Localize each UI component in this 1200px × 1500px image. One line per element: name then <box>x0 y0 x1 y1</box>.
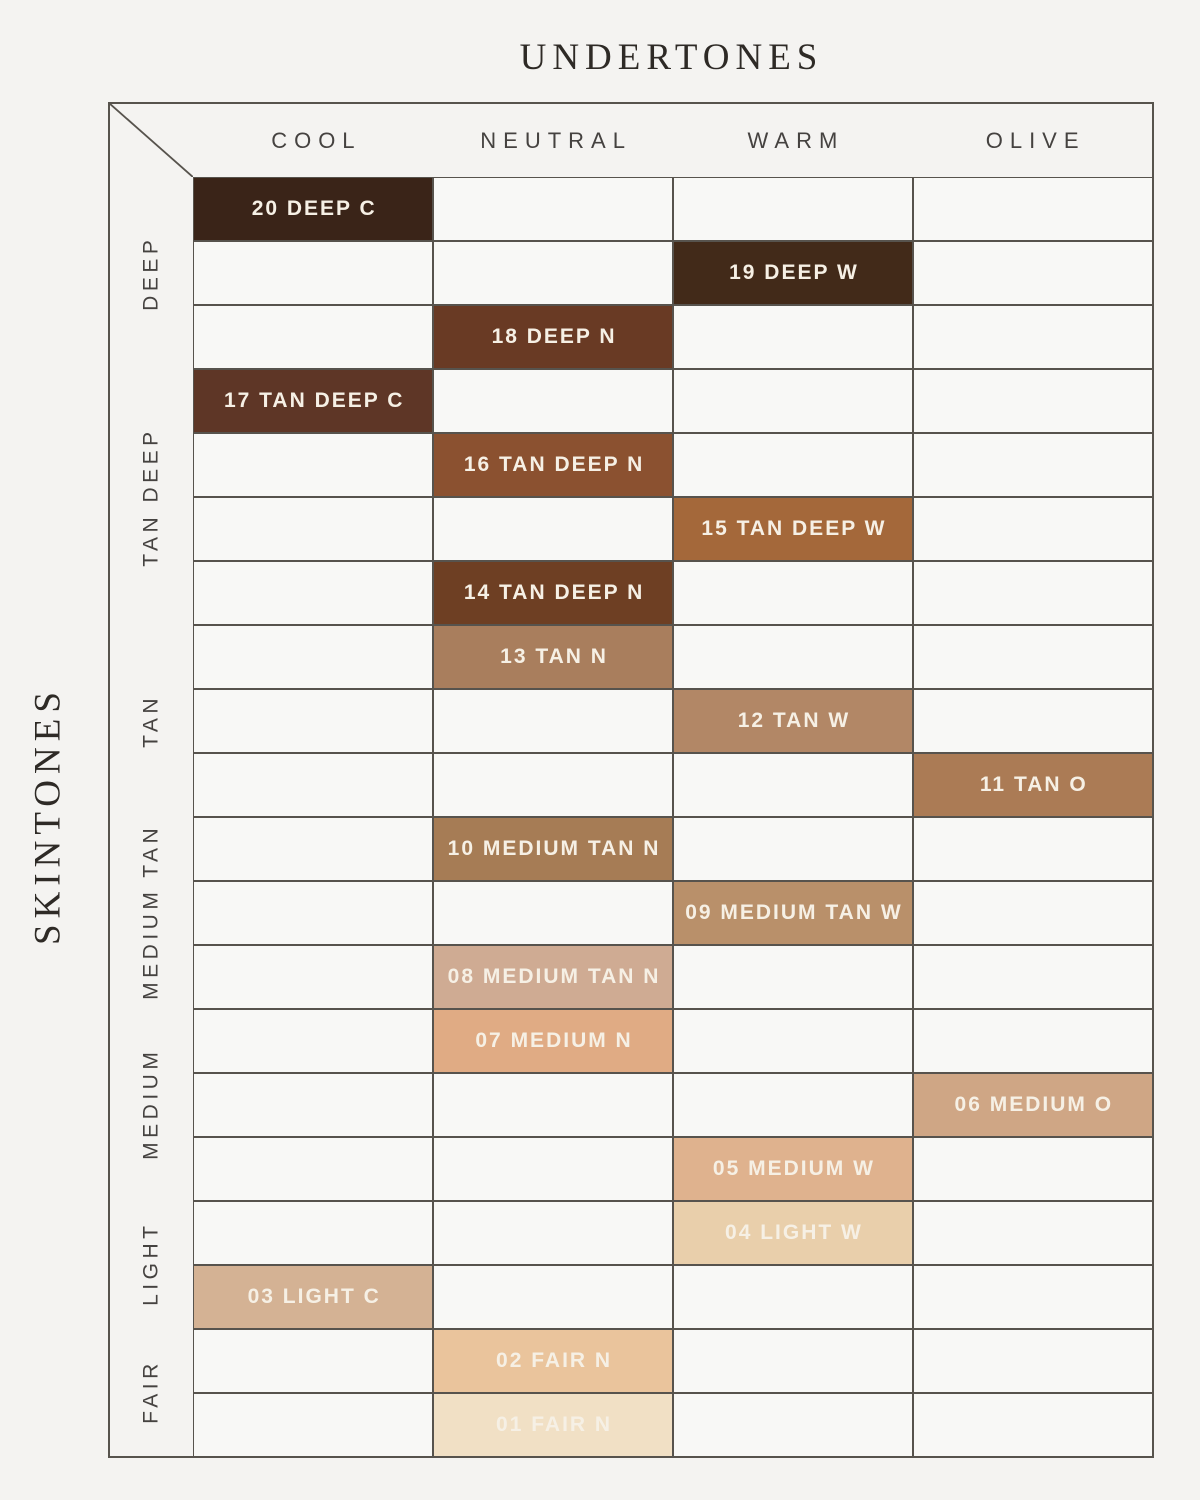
shade-swatch-13-tan-n: 13 TAN N <box>434 626 672 688</box>
empty-grid-cell <box>434 1266 672 1328</box>
empty-grid-cell <box>194 498 432 560</box>
undertone-header-olive: OLIVE <box>912 104 1152 177</box>
empty-grid-cell <box>194 754 432 816</box>
shade-swatch-05-medium-w: 05 MEDIUM W <box>674 1138 912 1200</box>
empty-grid-cell <box>914 690 1152 752</box>
corner-cell <box>110 104 193 177</box>
shade-swatch-16-tan-deep-n: 16 TAN DEEP N <box>434 434 672 496</box>
shade-swatch-08-medium-tan-n: 08 MEDIUM TAN N <box>434 946 672 1008</box>
empty-grid-cell <box>194 1394 432 1456</box>
empty-grid-cell <box>914 1330 1152 1392</box>
empty-grid-cell <box>194 1138 432 1200</box>
empty-grid-cell <box>914 882 1152 944</box>
empty-grid-cell <box>914 818 1152 880</box>
skintone-group-label-medium-tan: MEDIUM TAN <box>110 816 193 1008</box>
empty-grid-cell <box>914 306 1152 368</box>
shade-grid: 20 DEEP C19 DEEP W18 DEEP N17 TAN DEEP C… <box>193 177 1152 1456</box>
empty-grid-cell <box>674 370 912 432</box>
empty-grid-cell <box>434 1138 672 1200</box>
empty-grid-cell <box>674 818 912 880</box>
empty-grid-cell <box>914 434 1152 496</box>
empty-grid-cell <box>194 882 432 944</box>
skintone-group-label-light: LIGHT <box>110 1200 193 1328</box>
empty-grid-cell <box>194 434 432 496</box>
empty-grid-cell <box>434 242 672 304</box>
empty-grid-cell <box>914 1394 1152 1456</box>
empty-grid-cell <box>434 498 672 560</box>
shade-swatch-01-fair-n: 01 FAIR N <box>434 1394 672 1456</box>
empty-grid-cell <box>194 946 432 1008</box>
empty-grid-cell <box>914 1202 1152 1264</box>
empty-grid-cell <box>914 242 1152 304</box>
empty-grid-cell <box>674 1010 912 1072</box>
empty-grid-cell <box>914 946 1152 1008</box>
empty-grid-cell <box>194 690 432 752</box>
empty-grid-cell <box>914 1138 1152 1200</box>
empty-grid-cell <box>674 754 912 816</box>
empty-grid-cell <box>914 562 1152 624</box>
skintones-axis-title: SKINTONES <box>18 175 78 1456</box>
empty-grid-cell <box>194 306 432 368</box>
skintone-group-label-tan-deep: TAN DEEP <box>110 369 193 625</box>
empty-grid-cell <box>674 178 912 240</box>
empty-grid-cell <box>674 562 912 624</box>
shade-swatch-15-tan-deep-w: 15 TAN DEEP W <box>674 498 912 560</box>
empty-grid-cell <box>674 306 912 368</box>
empty-grid-cell <box>434 178 672 240</box>
skintone-group-label-deep: DEEP <box>110 177 193 369</box>
shade-swatch-04-light-w: 04 LIGHT W <box>674 1202 912 1264</box>
shade-swatch-09-medium-tan-w: 09 MEDIUM TAN W <box>674 882 912 944</box>
empty-grid-cell <box>194 1010 432 1072</box>
chart-title: UNDERTONES <box>191 36 1152 79</box>
empty-grid-cell <box>674 1394 912 1456</box>
empty-grid-cell <box>674 1266 912 1328</box>
shade-swatch-06-medium-o: 06 MEDIUM O <box>914 1074 1152 1136</box>
empty-grid-cell <box>194 818 432 880</box>
empty-grid-cell <box>434 882 672 944</box>
shade-swatch-03-light-c: 03 LIGHT C <box>194 1266 432 1328</box>
empty-grid-cell <box>674 1330 912 1392</box>
empty-grid-cell <box>194 1330 432 1392</box>
empty-grid-cell <box>194 1074 432 1136</box>
undertone-header-cool: COOL <box>193 104 433 177</box>
empty-grid-cell <box>674 626 912 688</box>
empty-grid-cell <box>914 1266 1152 1328</box>
shade-swatch-19-deep-w: 19 DEEP W <box>674 242 912 304</box>
undertone-header-neutral: NEUTRAL <box>433 104 673 177</box>
empty-grid-cell <box>914 626 1152 688</box>
shade-swatch-18-deep-n: 18 DEEP N <box>434 306 672 368</box>
empty-grid-cell <box>914 370 1152 432</box>
empty-grid-cell <box>914 1010 1152 1072</box>
shade-swatch-11-tan-o: 11 TAN O <box>914 754 1152 816</box>
empty-grid-cell <box>674 1074 912 1136</box>
undertones-header-row: COOLNEUTRALWARMOLIVE <box>193 104 1152 177</box>
empty-grid-cell <box>674 434 912 496</box>
corner-diagonal-line <box>110 104 193 177</box>
empty-grid-cell <box>914 178 1152 240</box>
empty-grid-cell <box>194 626 432 688</box>
empty-grid-cell <box>434 370 672 432</box>
empty-grid-cell <box>434 690 672 752</box>
shade-swatch-07-medium-n: 07 MEDIUM N <box>434 1010 672 1072</box>
skintone-group-label-fair: FAIR <box>110 1328 193 1456</box>
undertone-header-warm: WARM <box>673 104 913 177</box>
shade-swatch-17-tan-deep-c: 17 TAN DEEP C <box>194 370 432 432</box>
shade-swatch-10-medium-tan-n: 10 MEDIUM TAN N <box>434 818 672 880</box>
skintones-label-column: DEEPTAN DEEPTANMEDIUM TANMEDIUMLIGHTFAIR <box>110 177 193 1456</box>
empty-grid-cell <box>194 562 432 624</box>
empty-grid-cell <box>914 498 1152 560</box>
empty-grid-cell <box>434 1074 672 1136</box>
empty-grid-cell <box>194 242 432 304</box>
shade-swatch-20-deep-c: 20 DEEP C <box>194 178 432 240</box>
skintone-group-label-medium: MEDIUM <box>110 1008 193 1200</box>
shade-swatch-12-tan-w: 12 TAN W <box>674 690 912 752</box>
empty-grid-cell <box>434 1202 672 1264</box>
shade-swatch-02-fair-n: 02 FAIR N <box>434 1330 672 1392</box>
empty-grid-cell <box>194 1202 432 1264</box>
empty-grid-cell <box>674 946 912 1008</box>
shade-matrix-table: COOLNEUTRALWARMOLIVE DEEPTAN DEEPTANMEDI… <box>108 102 1154 1458</box>
skintone-group-label-tan: TAN <box>110 625 193 817</box>
empty-grid-cell <box>434 754 672 816</box>
shade-swatch-14-tan-deep-n: 14 TAN DEEP N <box>434 562 672 624</box>
